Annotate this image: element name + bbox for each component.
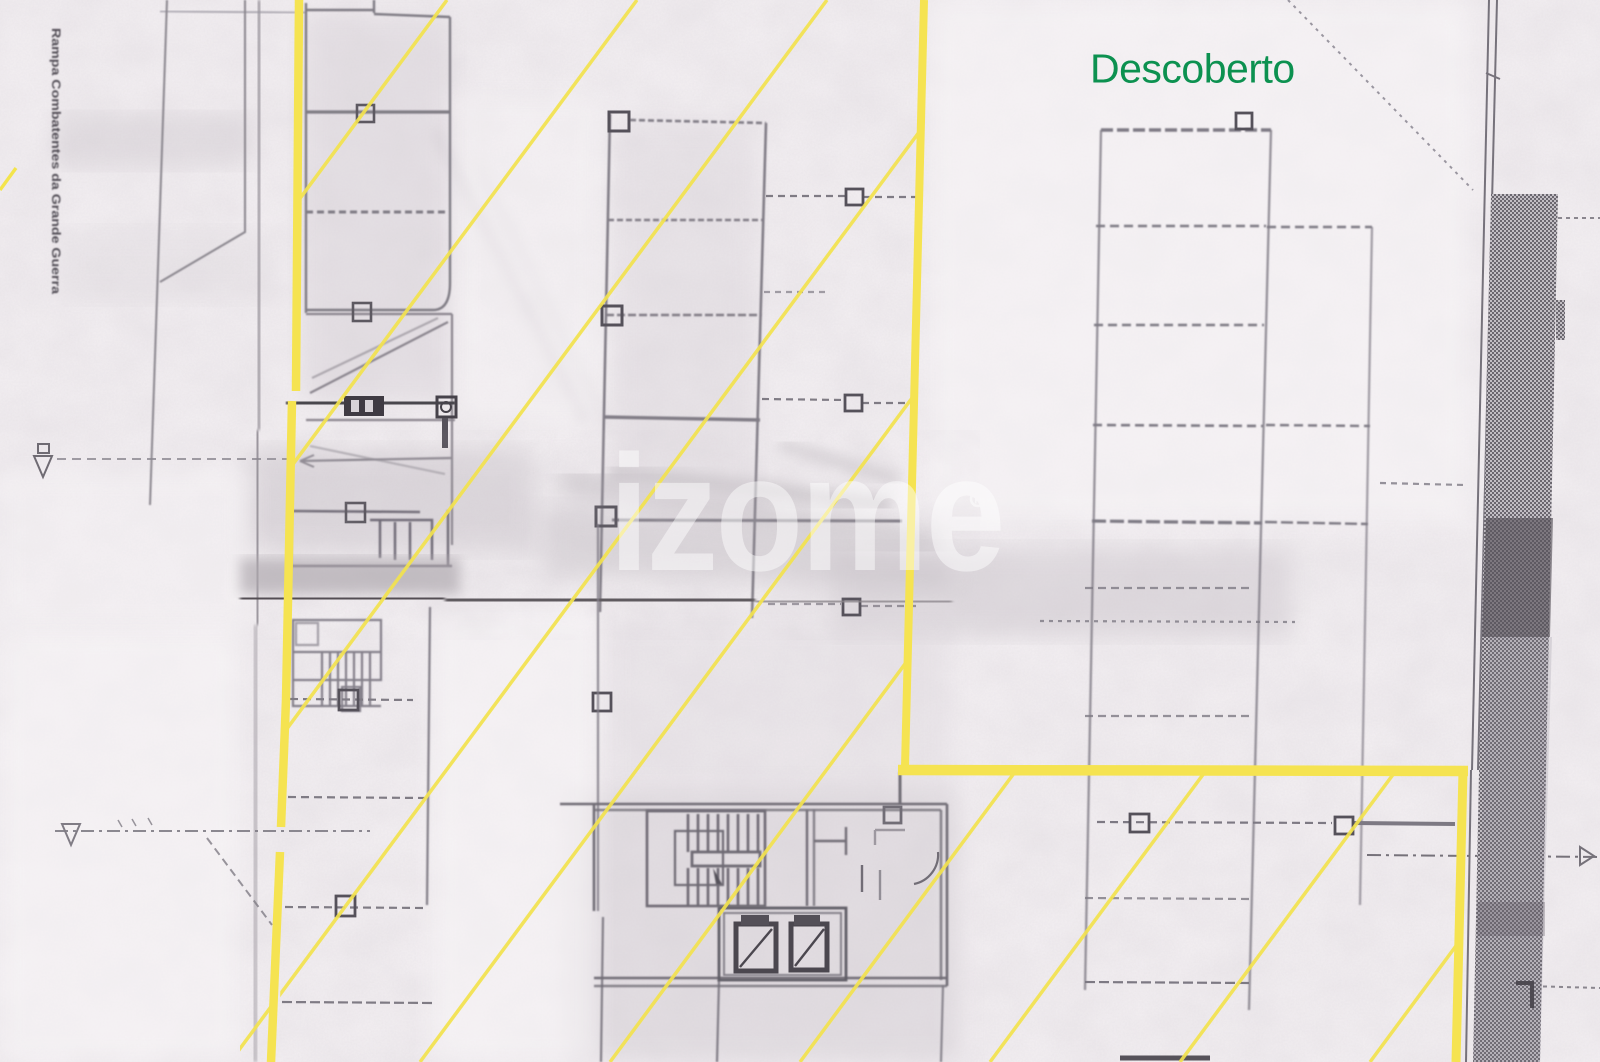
svg-text:izome: izome [609,421,1003,606]
svg-text:Rampa Combatentes da Grande Gu: Rampa Combatentes da Grande Guerra [49,28,61,295]
svg-text:R: R [974,496,982,507]
svg-text:Descoberto: Descoberto [1090,46,1295,92]
